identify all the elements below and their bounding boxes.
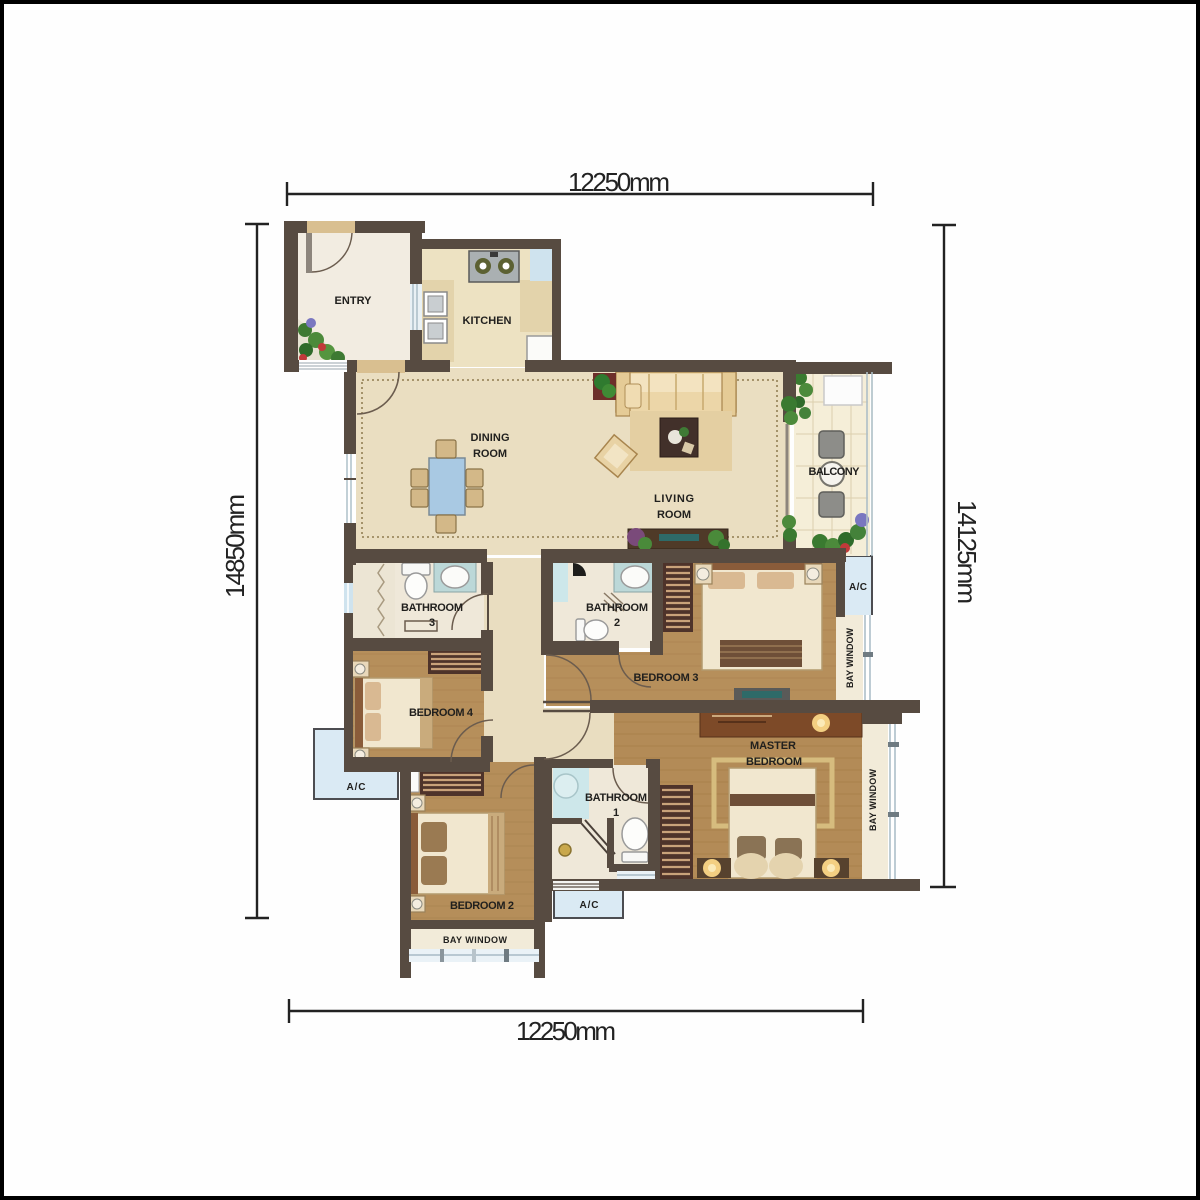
svg-text:BAY WINDOW: BAY WINDOW	[443, 935, 508, 945]
svg-text:BAY WINDOW: BAY WINDOW	[845, 628, 855, 689]
svg-text:DINING: DINING	[471, 432, 510, 444]
svg-text:ROOM: ROOM	[657, 509, 691, 521]
svg-text:BATHROOM: BATHROOM	[586, 602, 648, 614]
svg-text:12250mm: 12250mm	[568, 167, 670, 197]
svg-text:BEDROOM 4: BEDROOM 4	[409, 707, 474, 719]
svg-text:BEDROOM: BEDROOM	[746, 756, 802, 768]
svg-text:BATHROOM: BATHROOM	[585, 792, 647, 804]
svg-text:BEDROOM 2: BEDROOM 2	[450, 900, 514, 912]
svg-text:14125mm: 14125mm	[952, 500, 982, 604]
svg-text:14850mm: 14850mm	[220, 494, 250, 598]
svg-text:KITCHEN: KITCHEN	[463, 315, 512, 327]
svg-text:12250mm: 12250mm	[516, 1016, 616, 1046]
svg-text:1: 1	[613, 807, 619, 819]
svg-text:ENTRY: ENTRY	[335, 295, 373, 307]
svg-text:3: 3	[429, 617, 435, 629]
svg-text:A/C: A/C	[580, 900, 599, 911]
svg-text:BATHROOM: BATHROOM	[401, 602, 463, 614]
svg-text:2: 2	[614, 617, 620, 629]
svg-text:BALCONY: BALCONY	[809, 466, 861, 478]
svg-text:BEDROOM 3: BEDROOM 3	[634, 672, 699, 684]
svg-text:MASTER: MASTER	[750, 740, 796, 752]
svg-text:BAY WINDOW: BAY WINDOW	[868, 769, 878, 832]
svg-text:ROOM: ROOM	[473, 448, 507, 460]
svg-text:A/C: A/C	[347, 782, 366, 793]
svg-text:A/C: A/C	[849, 582, 867, 593]
svg-text:LIVING: LIVING	[654, 493, 694, 505]
